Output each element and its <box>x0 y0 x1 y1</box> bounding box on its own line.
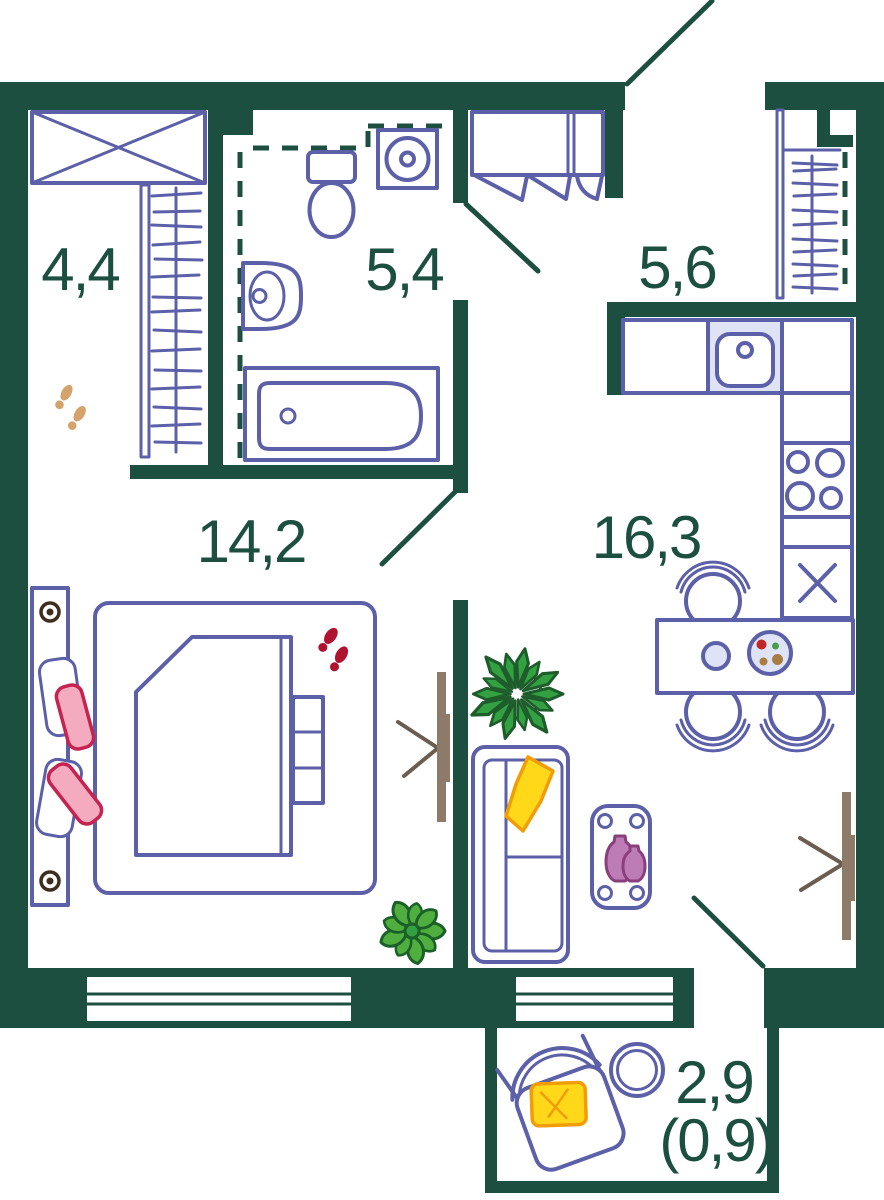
room-label-wardrobe: 4,4 <box>41 236 119 303</box>
coffee-table-icon <box>592 806 650 908</box>
kitchen-sink-icon <box>717 334 773 386</box>
footprints-icon <box>53 383 88 432</box>
room-label-balcony-secondary: (0,9) <box>659 1107 772 1174</box>
bathtub-icon <box>245 368 438 460</box>
cushion-icon <box>531 1082 586 1126</box>
toilet-icon <box>308 152 355 237</box>
lounge-chair-icon <box>496 1034 628 1177</box>
balcony-table-icon <box>611 1044 663 1096</box>
balcony-door <box>694 898 763 966</box>
dining-table-icon <box>657 620 853 693</box>
plate-icon <box>749 632 791 674</box>
room-label-kitchen-living: 16,3 <box>592 504 701 571</box>
room-label-balcony: 2,9 <box>675 1049 752 1116</box>
floor-plan: 4,4 5,4 5,6 14,2 16,3 2,9 (0,9) <box>0 0 884 1200</box>
plant-icon <box>378 898 445 964</box>
entry-door <box>627 1 712 84</box>
entry-closet-icon <box>472 112 603 200</box>
bed-bench-icon <box>293 697 323 803</box>
living-room-tv-icon <box>800 792 855 940</box>
floor-plan-drawing: 4,4 5,4 5,6 14,2 16,3 2,9 (0,9) <box>0 0 884 1200</box>
bedroom-window <box>85 975 353 1023</box>
plate-icon <box>703 643 729 669</box>
bed-icon <box>32 588 375 905</box>
blanket-icon <box>136 637 291 855</box>
balcony-door-opening <box>694 968 764 1028</box>
bedroom-door <box>382 492 455 564</box>
washbasin-icon <box>243 263 301 329</box>
room-label-bedroom: 14,2 <box>197 508 306 575</box>
clothes-rail-icon <box>141 185 202 457</box>
bathroom-door <box>466 204 538 271</box>
washing-machine-icon <box>378 130 437 188</box>
room-label-bathroom: 5,4 <box>365 236 443 303</box>
sofa-icon <box>473 747 568 962</box>
living-room-window <box>514 975 675 1023</box>
bedroom-tv-icon <box>398 672 450 822</box>
room-label-hallway: 5,6 <box>638 234 715 301</box>
plant-icon <box>469 648 563 740</box>
wardrobe-cabinet-icon <box>32 112 205 183</box>
